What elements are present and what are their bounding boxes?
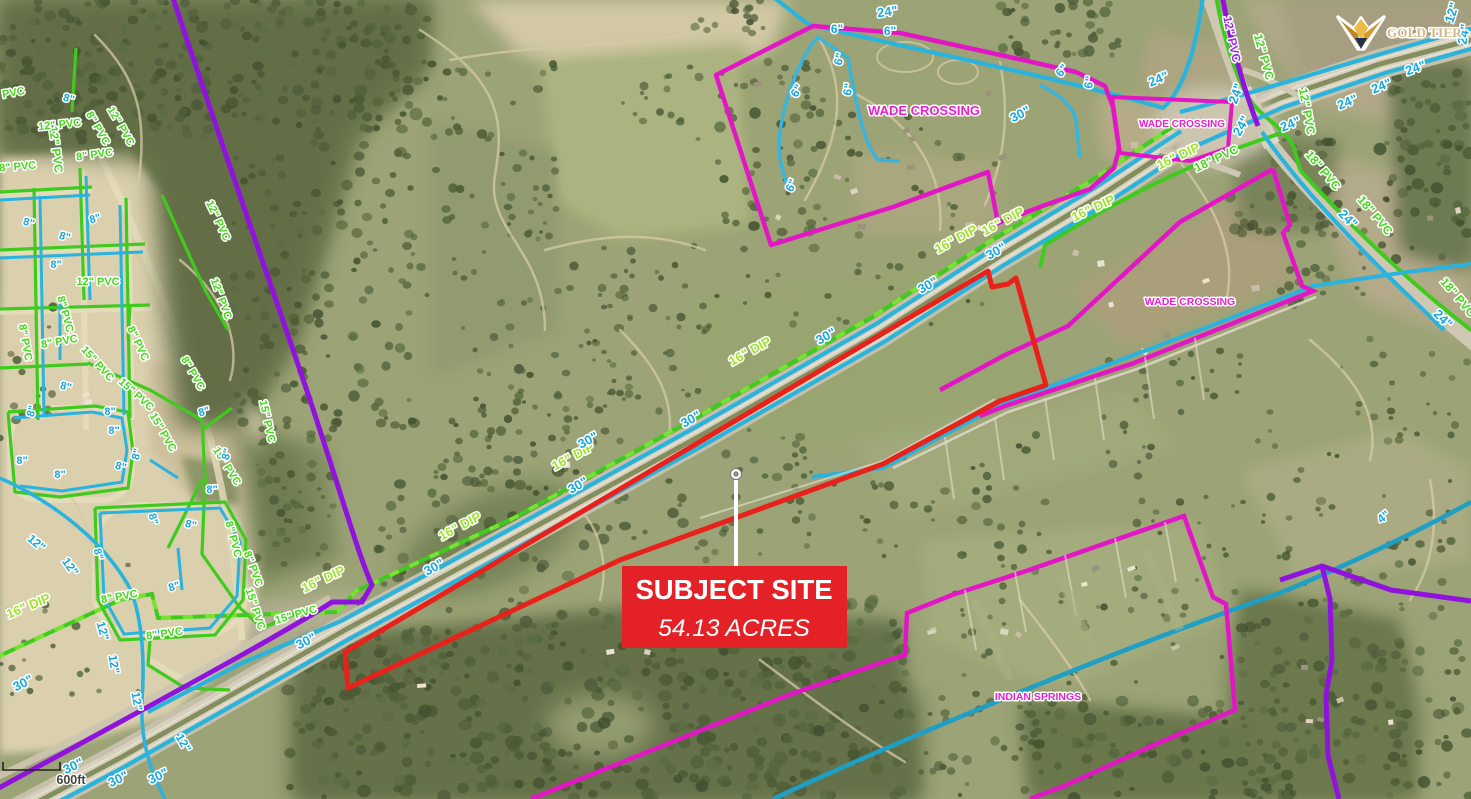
svg-text:8": 8": [104, 406, 115, 418]
svg-text:600ft: 600ft: [56, 773, 86, 787]
svg-text:24": 24": [876, 3, 899, 21]
svg-text:6": 6": [840, 82, 856, 97]
svg-text:8": 8": [108, 425, 119, 437]
svg-text:8": 8": [50, 259, 61, 271]
svg-text:6": 6": [831, 22, 843, 36]
svg-text:INDIAN SPRINGS: INDIAN SPRINGS: [995, 691, 1081, 703]
svg-text:6": 6": [1081, 75, 1097, 90]
svg-text:8": 8": [206, 484, 217, 496]
svg-text:SUBJECT SITE: SUBJECT SITE: [635, 574, 832, 605]
svg-text:WADE CROSSING: WADE CROSSING: [868, 103, 980, 118]
svg-text:54.13 ACRES: 54.13 ACRES: [658, 615, 810, 642]
svg-text:8": 8": [54, 469, 65, 481]
svg-text:GOLD TIER: GOLD TIER: [1387, 25, 1462, 40]
svg-text:WADE CROSSING: WADE CROSSING: [1145, 296, 1235, 308]
svg-text:6": 6": [884, 24, 896, 38]
svg-text:12" PVC: 12" PVC: [76, 276, 119, 288]
svg-text:WADE CROSSING: WADE CROSSING: [1139, 119, 1225, 130]
svg-text:8": 8": [16, 455, 27, 467]
